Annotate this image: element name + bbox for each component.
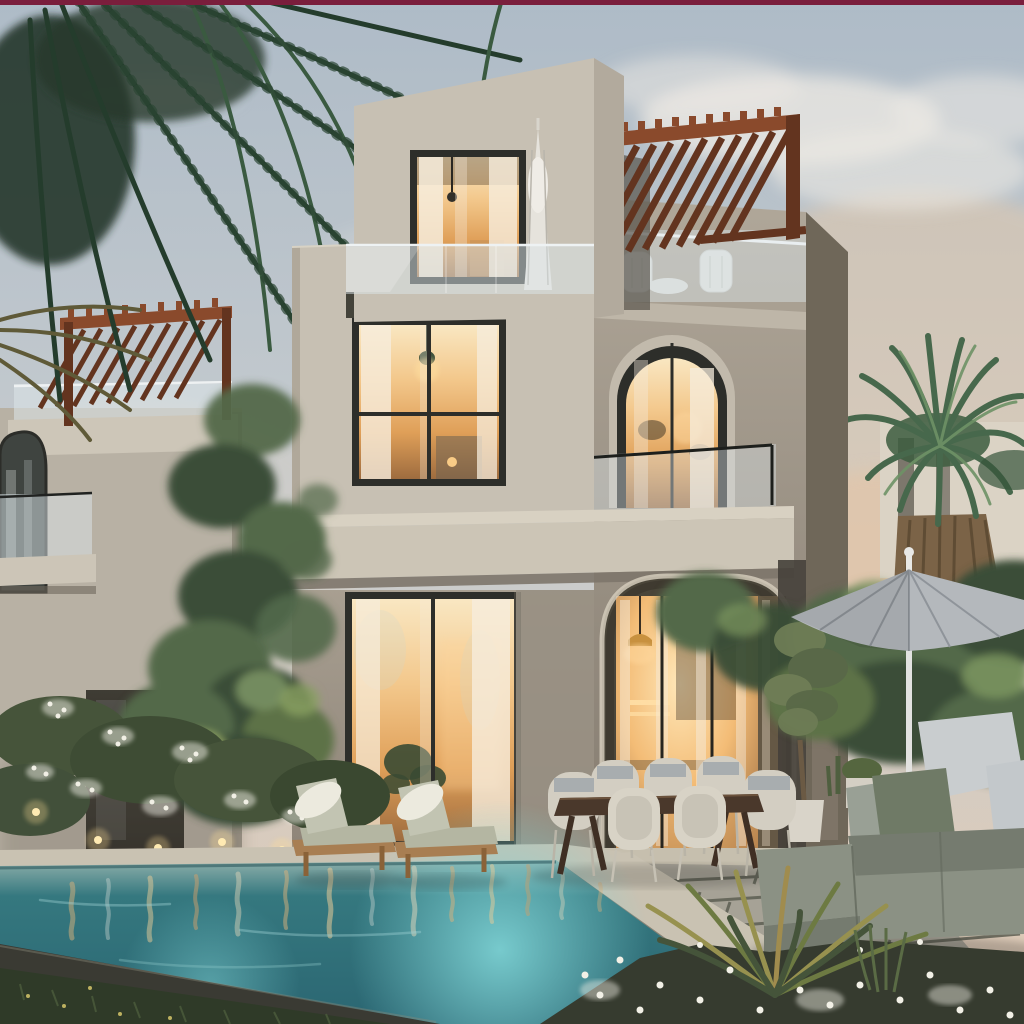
sofa-seat	[848, 868, 1024, 940]
scene-canvas	[0, 0, 1024, 1024]
sofa-chaise	[756, 844, 860, 926]
top-terrace-glass-railing	[346, 244, 594, 294]
left-villa-balcony	[0, 493, 96, 594]
top-edge-strip	[0, 0, 1024, 5]
balcony-railing	[584, 444, 776, 516]
villa-render-image	[0, 0, 1024, 1024]
umbrella-finial	[904, 547, 914, 557]
middle-floor-window	[352, 318, 506, 486]
